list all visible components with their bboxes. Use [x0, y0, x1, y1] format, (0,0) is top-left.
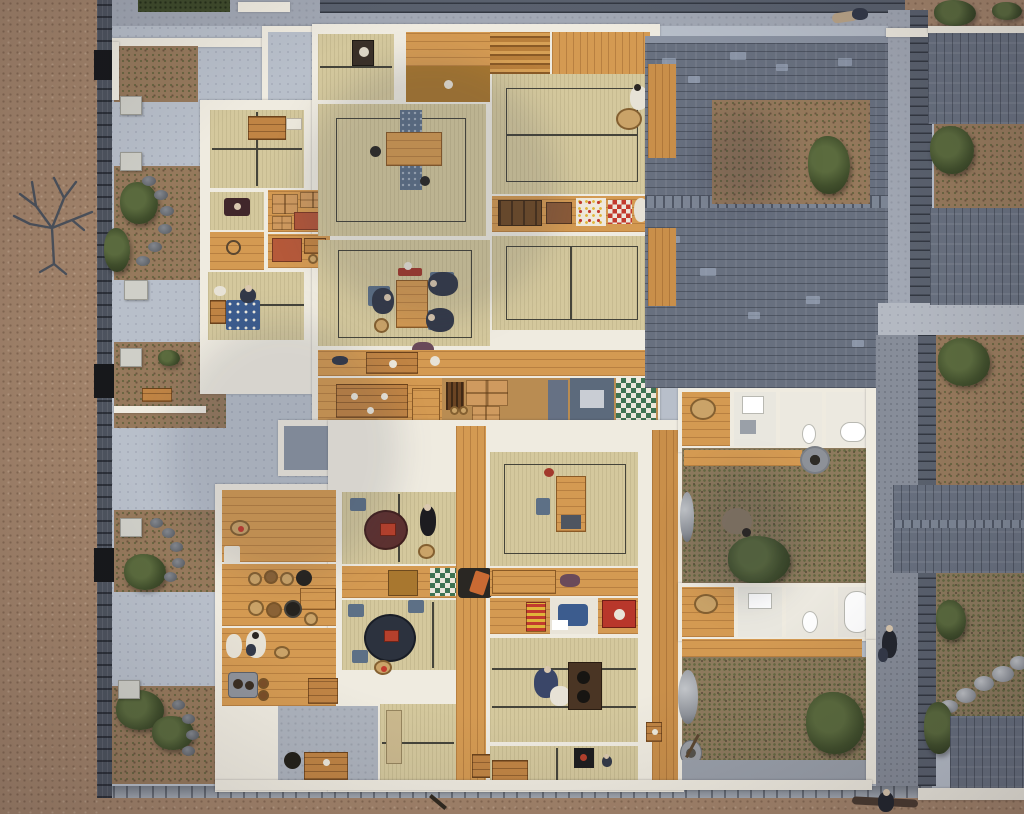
vignette-overlay	[0, 0, 1024, 814]
diorama-photo	[0, 0, 1024, 814]
